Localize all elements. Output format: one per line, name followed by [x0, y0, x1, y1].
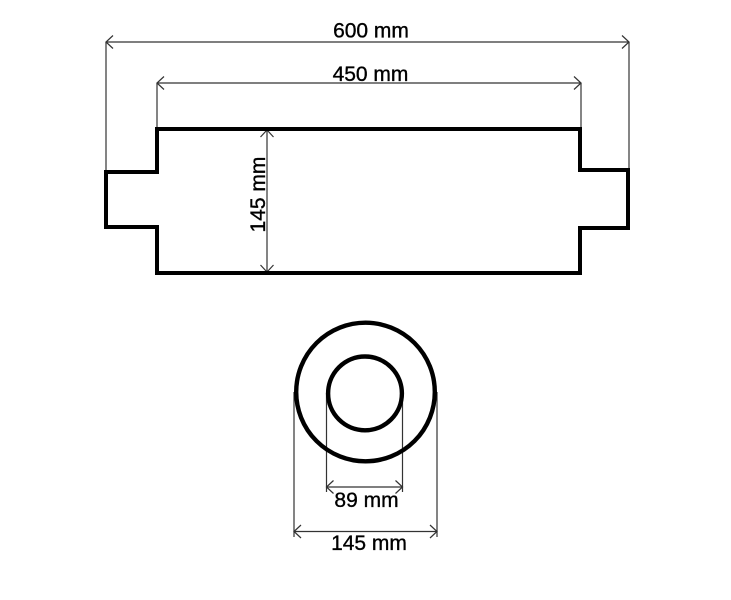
svg-text:145 mm: 145 mm — [331, 532, 407, 555]
svg-text:89 mm: 89 mm — [334, 489, 398, 512]
svg-text:600 mm: 600 mm — [333, 20, 409, 43]
svg-text:145 mm: 145 mm — [247, 157, 270, 233]
svg-text:450 mm: 450 mm — [333, 63, 409, 86]
